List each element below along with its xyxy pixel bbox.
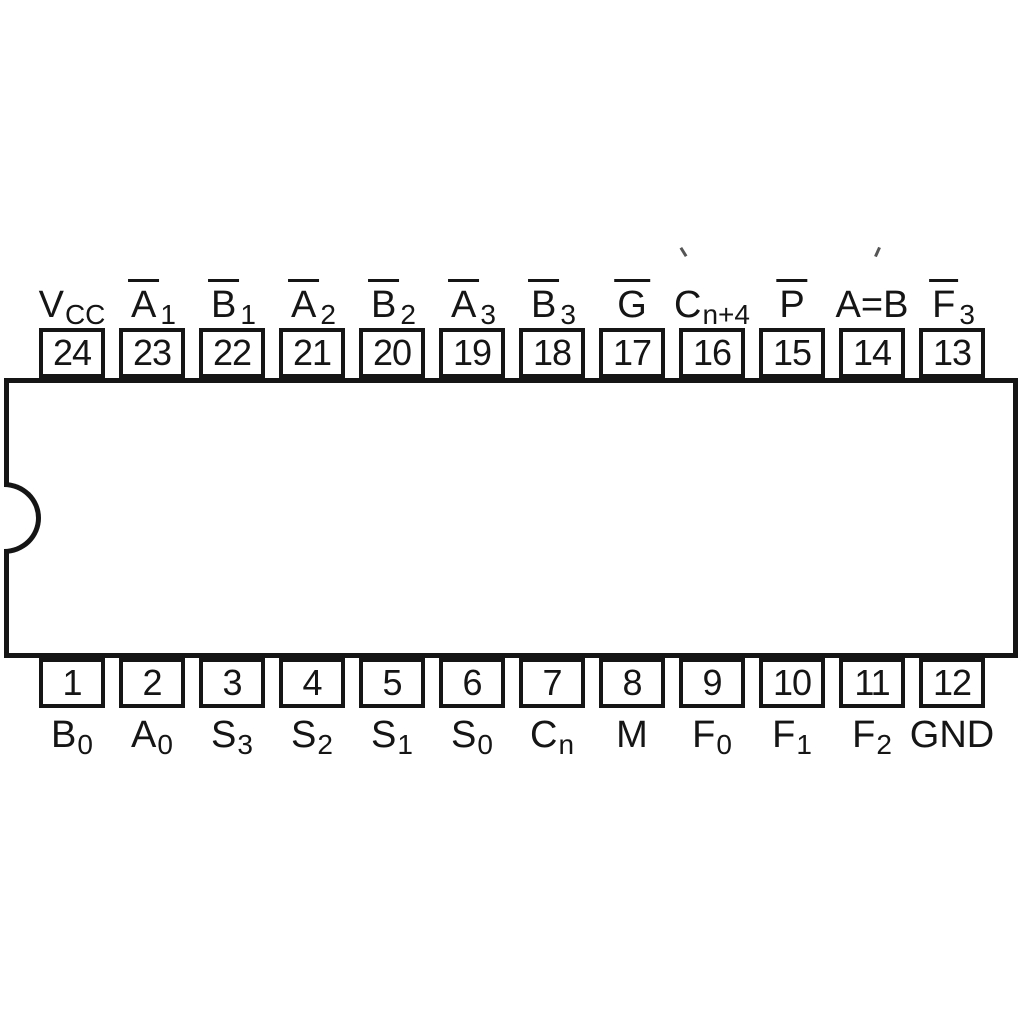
pin-box: 18 [519, 328, 585, 378]
pin-label: A1 [128, 279, 176, 324]
signal-name: V [39, 286, 64, 324]
signal-subscript: 3 [237, 729, 253, 760]
pin-box: 15 [759, 328, 825, 378]
signal-name-overbar: P [776, 279, 807, 324]
signal-name: F [852, 716, 875, 754]
ic-pinout-diagram: 24VCC23A122B121A220B219A318B317G16Cn+415… [0, 0, 1024, 1024]
pin-box: 3 [199, 658, 265, 708]
pin-number: 11 [843, 662, 901, 704]
pin-box: 9 [679, 658, 745, 708]
pin-number: 10 [763, 662, 821, 704]
pin-label: S1 [371, 716, 413, 754]
pin-label: Cn [530, 716, 574, 754]
pin-box: 22 [199, 328, 265, 378]
pin-label: B2 [368, 279, 416, 324]
pin-number: 3 [203, 662, 261, 704]
pin-label: A3 [448, 279, 496, 324]
signal-subscript: 2 [876, 729, 892, 760]
pin-number: 13 [923, 332, 981, 374]
signal-name: A=B [836, 286, 909, 324]
signal-name: B [51, 716, 76, 754]
signal-name: C [674, 286, 701, 324]
pin-label: B1 [208, 279, 256, 324]
pin-number: 7 [523, 662, 581, 704]
pin-box: 8 [599, 658, 665, 708]
pin-number: 18 [523, 332, 581, 374]
pin-box: 16 [679, 328, 745, 378]
pin-box: 10 [759, 658, 825, 708]
pin-label: GND [910, 716, 994, 754]
ink-speck [680, 247, 688, 257]
pin-number: 6 [443, 662, 501, 704]
pin-box: 1 [39, 658, 105, 708]
pin-box: 19 [439, 328, 505, 378]
pin-box: 2 [119, 658, 185, 708]
signal-name: F [772, 716, 795, 754]
pin-number: 12 [923, 662, 981, 704]
pin-label: B0 [51, 716, 93, 754]
signal-name: S [451, 716, 476, 754]
pin-number: 24 [43, 332, 101, 374]
pin-box: 24 [39, 328, 105, 378]
pin-number: 14 [843, 332, 901, 374]
pin-number: 15 [763, 332, 821, 374]
signal-name-overbar: A [288, 279, 319, 324]
signal-name: GND [910, 716, 994, 754]
pin-box: 17 [599, 328, 665, 378]
pin-label: M [616, 716, 648, 754]
signal-name-overbar: F [929, 279, 958, 324]
pin-box: 4 [279, 658, 345, 708]
pin-box: 6 [439, 658, 505, 708]
pin-label: F1 [772, 716, 812, 754]
pin-label: A=B [836, 286, 909, 324]
signal-subscript: 1 [796, 729, 812, 760]
signal-name-overbar: G [614, 279, 650, 324]
signal-name-overbar: A [128, 279, 159, 324]
pin-number: 17 [603, 332, 661, 374]
signal-subscript: n [558, 729, 574, 760]
ink-speck [874, 247, 881, 257]
pin-number: 9 [683, 662, 741, 704]
signal-name: M [616, 716, 648, 754]
signal-subscript: 1 [397, 729, 413, 760]
pin-box: 21 [279, 328, 345, 378]
pin-label: Cn+4 [674, 286, 750, 324]
signal-subscript: 2 [400, 299, 416, 330]
pin-label: B3 [528, 279, 576, 324]
pin1-notch [4, 482, 41, 554]
signal-name: A [131, 716, 156, 754]
pin-number: 16 [683, 332, 741, 374]
pin-number: 23 [123, 332, 181, 374]
signal-name-overbar: A [448, 279, 479, 324]
signal-subscript: 0 [77, 729, 93, 760]
signal-subscript: 3 [480, 299, 496, 330]
pin-label: P [776, 279, 807, 324]
pin-label: A2 [288, 279, 336, 324]
signal-subscript: 2 [320, 299, 336, 330]
pin-number: 8 [603, 662, 661, 704]
pin-label: S2 [291, 716, 333, 754]
pin-number: 4 [283, 662, 341, 704]
pin-number: 19 [443, 332, 501, 374]
signal-subscript: 1 [160, 299, 176, 330]
pin-label: G [614, 279, 650, 324]
signal-subscript: n+4 [702, 299, 750, 330]
pin-number: 21 [283, 332, 341, 374]
signal-subscript: 1 [240, 299, 256, 330]
signal-subscript: 0 [157, 729, 173, 760]
signal-name: S [211, 716, 236, 754]
signal-subscript: 3 [959, 299, 975, 330]
pin-label: S0 [451, 716, 493, 754]
signal-name: C [530, 716, 557, 754]
signal-name: S [291, 716, 316, 754]
ic-body [4, 378, 1018, 658]
pin-box: 23 [119, 328, 185, 378]
signal-name: F [692, 716, 715, 754]
signal-name-overbar: B [528, 279, 559, 324]
pin-box: 13 [919, 328, 985, 378]
pin-number: 5 [363, 662, 421, 704]
pin-box: 5 [359, 658, 425, 708]
pin-label: F0 [692, 716, 732, 754]
signal-name-overbar: B [368, 279, 399, 324]
pin-label: F3 [929, 279, 975, 324]
pin-box: 12 [919, 658, 985, 708]
signal-subscript: 2 [317, 729, 333, 760]
pin-label: S3 [211, 716, 253, 754]
pin-number: 1 [43, 662, 101, 704]
pin-box: 11 [839, 658, 905, 708]
pin-label: VCC [39, 286, 106, 324]
signal-subscript: CC [65, 299, 105, 330]
pin-label: F2 [852, 716, 892, 754]
pin-label: A0 [131, 716, 173, 754]
pin-box: 20 [359, 328, 425, 378]
pin-number: 22 [203, 332, 261, 374]
pin-number: 2 [123, 662, 181, 704]
signal-name: S [371, 716, 396, 754]
signal-subscript: 3 [560, 299, 576, 330]
signal-subscript: 0 [477, 729, 493, 760]
signal-subscript: 0 [716, 729, 732, 760]
signal-name-overbar: B [208, 279, 239, 324]
pin-box: 7 [519, 658, 585, 708]
pin-number: 20 [363, 332, 421, 374]
pin-box: 14 [839, 328, 905, 378]
